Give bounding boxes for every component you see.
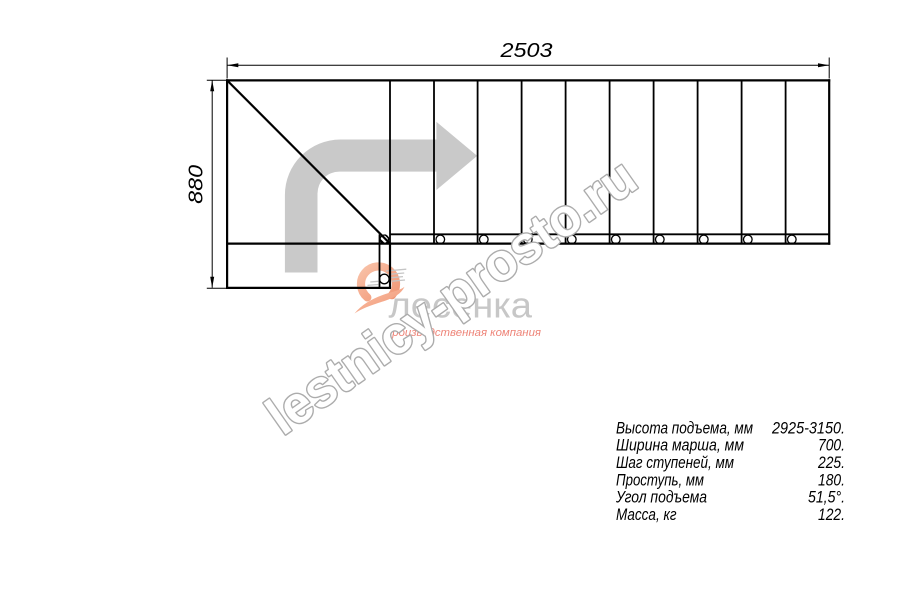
svg-text:Ширина марша, мм: Ширина марша, мм: [616, 436, 744, 455]
svg-text:Высота подъема, мм: Высота подъема, мм: [616, 418, 753, 437]
svg-text:Угол подъема: Угол подъема: [615, 488, 707, 507]
svg-text:225.: 225.: [817, 453, 845, 472]
svg-text:51,5°.: 51,5°.: [808, 488, 845, 507]
svg-text:Проступь, мм: Проступь, мм: [616, 470, 704, 489]
svg-text:2503: 2503: [499, 39, 553, 62]
svg-text:2925-3150.: 2925-3150.: [771, 418, 845, 437]
svg-text:880: 880: [185, 164, 208, 204]
svg-text:700.: 700.: [818, 436, 845, 455]
svg-text:Шаг ступеней, мм: Шаг ступеней, мм: [616, 453, 734, 472]
svg-text:Масса, кг: Масса, кг: [616, 505, 677, 524]
svg-text:180.: 180.: [818, 470, 845, 489]
svg-text:122.: 122.: [818, 505, 845, 524]
